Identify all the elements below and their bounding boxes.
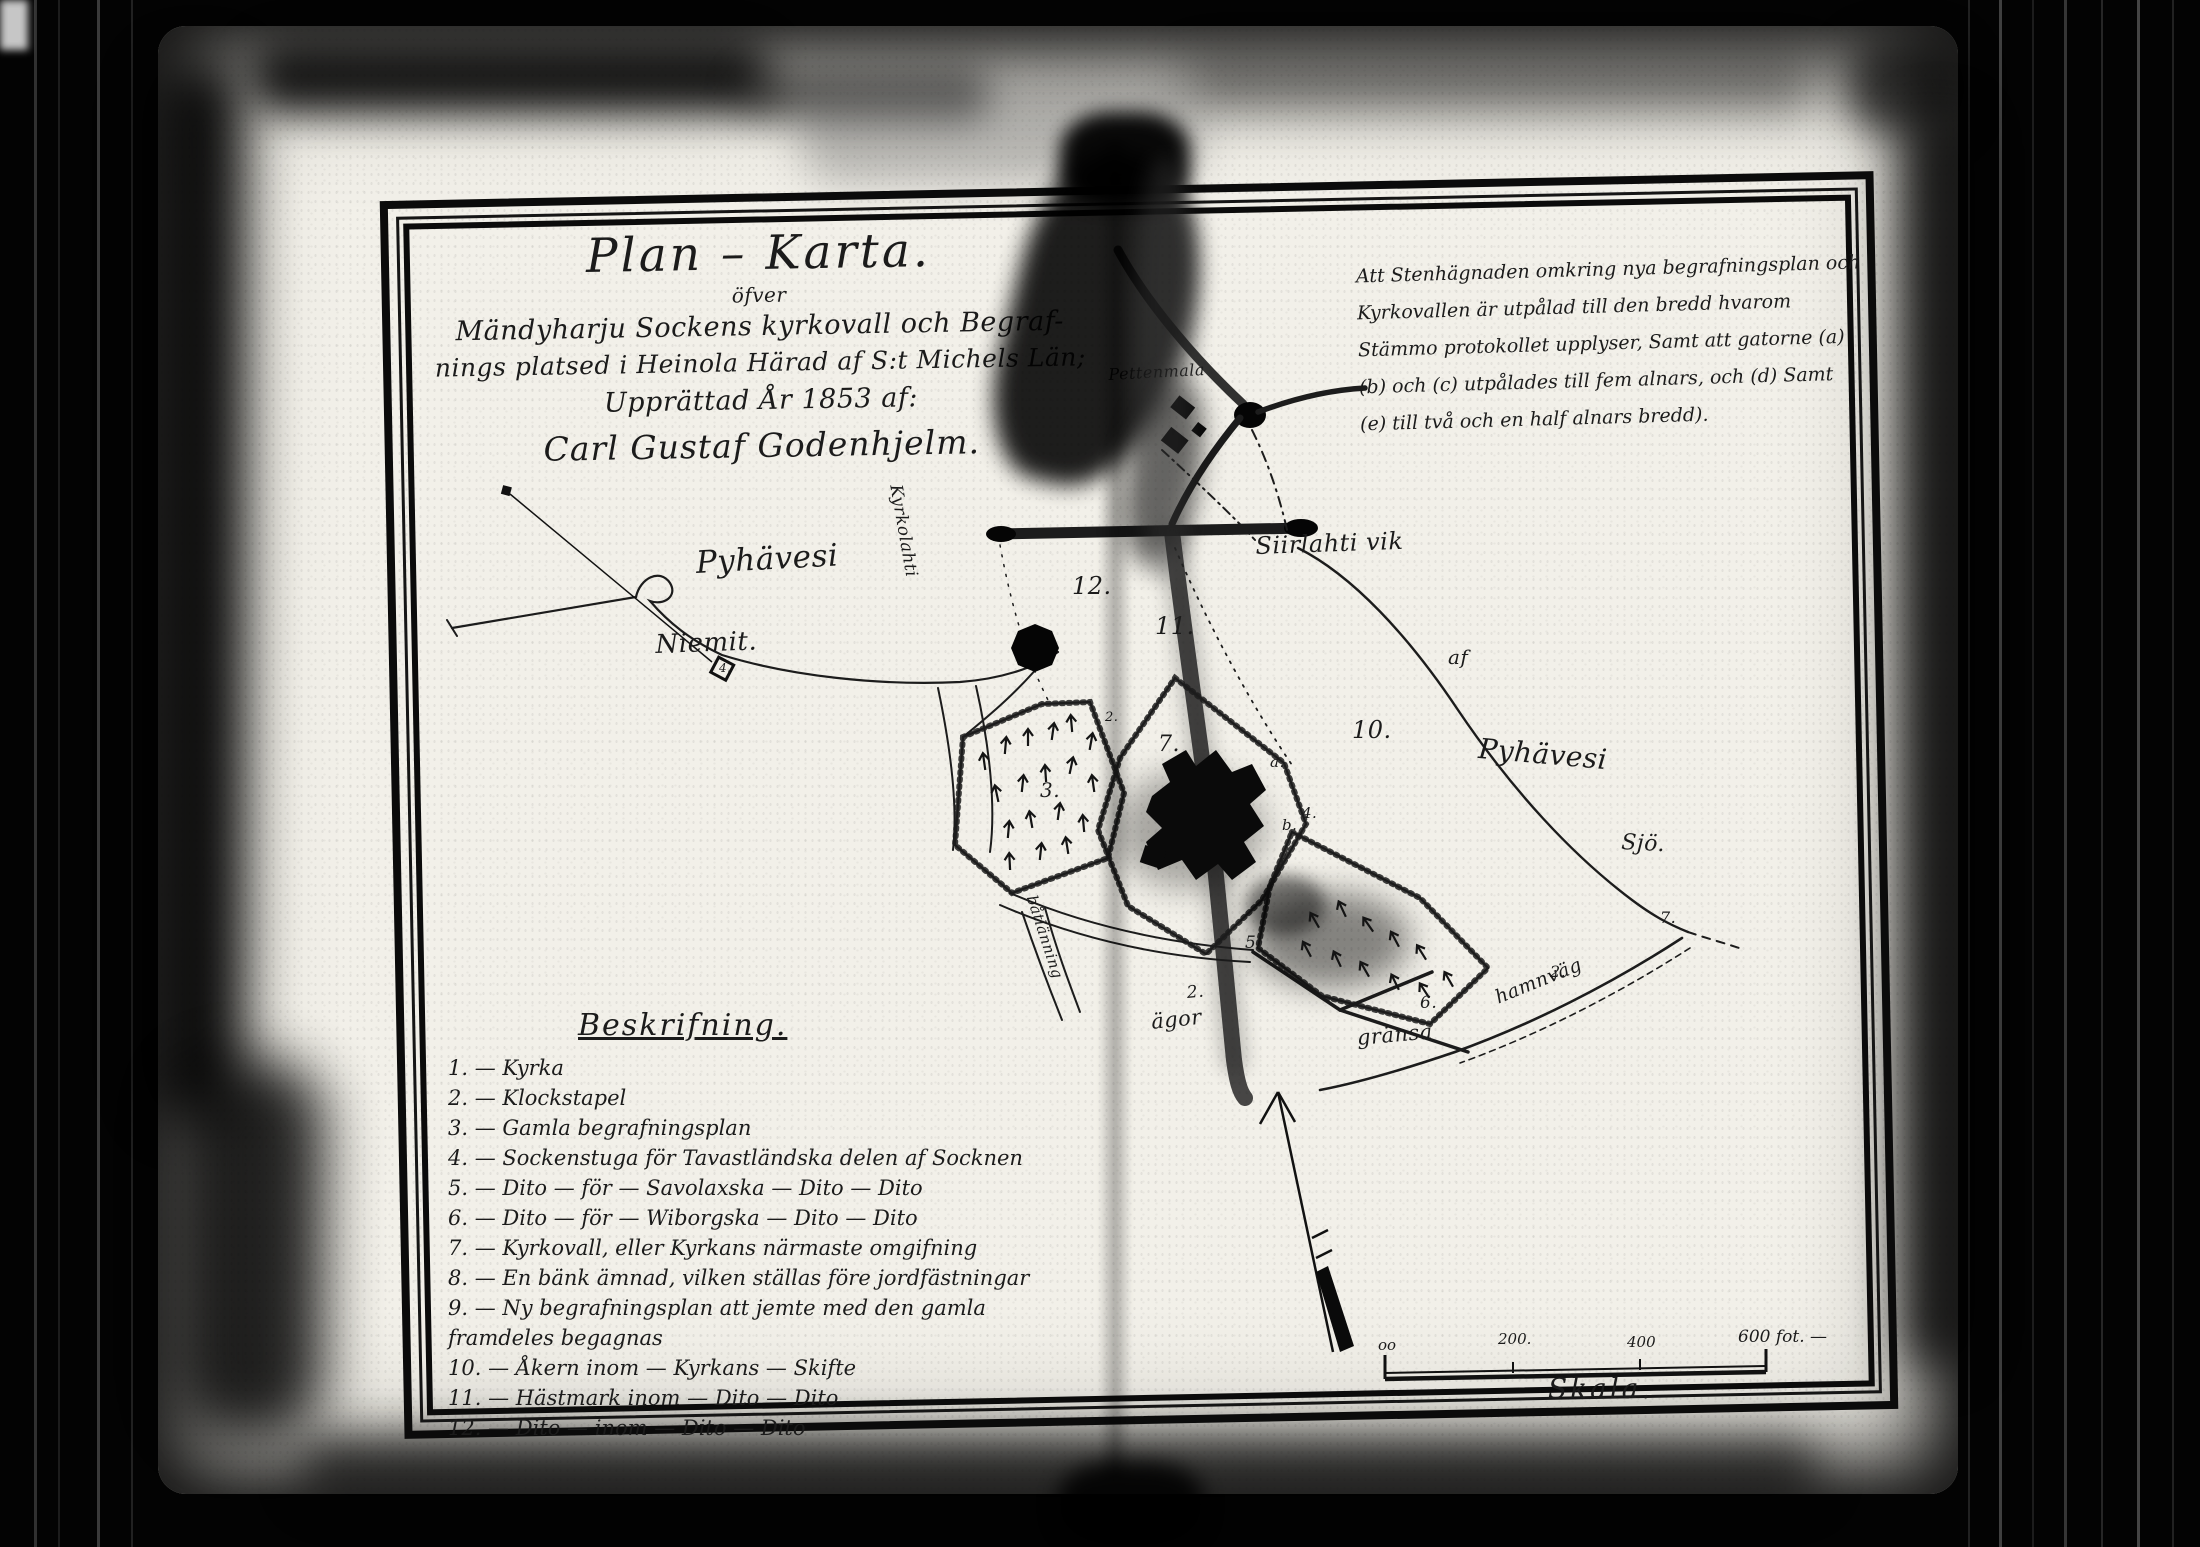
scale-title: Skala. <box>1548 1372 1653 1405</box>
legend-item: 9. — Ny begrafningsplan att jemte med de… <box>448 1293 1068 1353</box>
map-label-letter-b: b. <box>1282 816 1297 834</box>
legend-item: 2. — Klockstapel <box>448 1083 1068 1113</box>
map-label-siirlahti-vik: Siirlahti vik <box>1255 527 1404 560</box>
map-label-af: af <box>1448 645 1468 669</box>
scan-corner-artifact <box>0 0 28 50</box>
scale-tick-200: 200. <box>1498 1330 1531 1348</box>
scale-tick-400: 400 <box>1627 1333 1656 1351</box>
legend-header: Beskrifning. <box>578 1008 1088 1043</box>
map-label-num-11: 11. <box>1155 612 1195 640</box>
legend-item: 12. — Dito — inom — Dito — Dito <box>448 1413 1068 1443</box>
legend-item: 7. — Kyrkovall, eller Kyrkans närmaste o… <box>448 1233 1068 1263</box>
scanner-streak <box>1999 0 2002 1547</box>
scanner-streak <box>2032 0 2034 1547</box>
legend-item: 1. — Kyrka <box>448 1053 1068 1083</box>
scale-tick-600: 600 fot. — <box>1738 1327 1827 1347</box>
map-label-num-6: 6. <box>1420 993 1437 1013</box>
map-label-num-4-centre: 4. <box>1302 804 1317 822</box>
scanner-streak <box>2172 0 2174 1547</box>
title-line-district: nings platsed i Heinola Härad af S:t Mic… <box>430 342 1090 383</box>
legend-item: 11. — Hästmark inom — Dito — Dito <box>448 1383 1068 1413</box>
legend-item: 5. — Dito — för — Savolaxska — Dito — Di… <box>448 1173 1068 1203</box>
scanner-streak <box>2101 0 2103 1547</box>
map-label-letter-a: a. <box>1270 753 1285 771</box>
legend-list: 1. — Kyrka 2. — Klockstapel 3. — Gamla b… <box>448 1053 1088 1443</box>
legend-block: Beskrifning. 1. — Kyrka 2. — Klockstapel… <box>448 1008 1088 1443</box>
scanner-streak <box>58 0 60 1547</box>
scale-tick-0: oo <box>1378 1336 1396 1354</box>
legend-item: 10. — Åkern inom — Kyrkans — Skifte <box>448 1353 1068 1383</box>
map-label-num-12: 12. <box>1072 572 1112 600</box>
map-label-num-10: 10. <box>1352 716 1392 744</box>
scanner-streak <box>2064 0 2067 1547</box>
scanner-streak <box>97 0 100 1547</box>
title-block: Plan – Karta. öfver Mändyharju Sockens k… <box>428 220 1092 470</box>
map-label-pyhavesi-west: Pyhävesi <box>695 538 839 581</box>
legend-item: 3. — Gamla begrafningsplan <box>448 1113 1068 1143</box>
map-label-niemit: Niemit. <box>655 626 758 660</box>
map-label-num-7: 7. <box>1158 732 1180 757</box>
marginal-note: Att Stenhägnaden omkring nya begrafnings… <box>1356 246 1821 444</box>
scan-stage: Plan – Karta. öfver Mändyharju Sockens k… <box>0 0 2200 1547</box>
title-line-parish: Mändyharju Sockens kyrkovall och Begraf- <box>429 305 1089 348</box>
legend-item: 6. — Dito — för — Wiborgska — Dito — Dit… <box>448 1203 1068 1233</box>
map-label-num-2-west: 2. <box>1105 710 1118 725</box>
map-label-num-2-agor: 2. <box>1186 981 1205 1002</box>
map-label-num-7-east: 7. <box>1660 908 1676 927</box>
map-title: Plan – Karta. <box>428 220 1089 287</box>
map-label-num-5: 5. <box>1245 933 1262 953</box>
legend-item: 4. — Sockenstuga för Tavastländska delen… <box>448 1143 1068 1173</box>
map-label-num-4-northwest: 4. <box>719 661 731 675</box>
scanner-streak <box>2137 0 2140 1547</box>
scanner-streak <box>131 0 133 1547</box>
title-line-year: Upprättad År 1853 af: <box>431 379 1091 422</box>
scanner-streak <box>34 0 37 1547</box>
legend-item: 8. — En bänk ämnad, vilken ställas före … <box>448 1263 1068 1293</box>
map-label-sjo: Sjö. <box>1621 830 1666 857</box>
map-label-num-3: 3. <box>1040 778 1060 802</box>
scanner-streak <box>1968 0 1970 1547</box>
